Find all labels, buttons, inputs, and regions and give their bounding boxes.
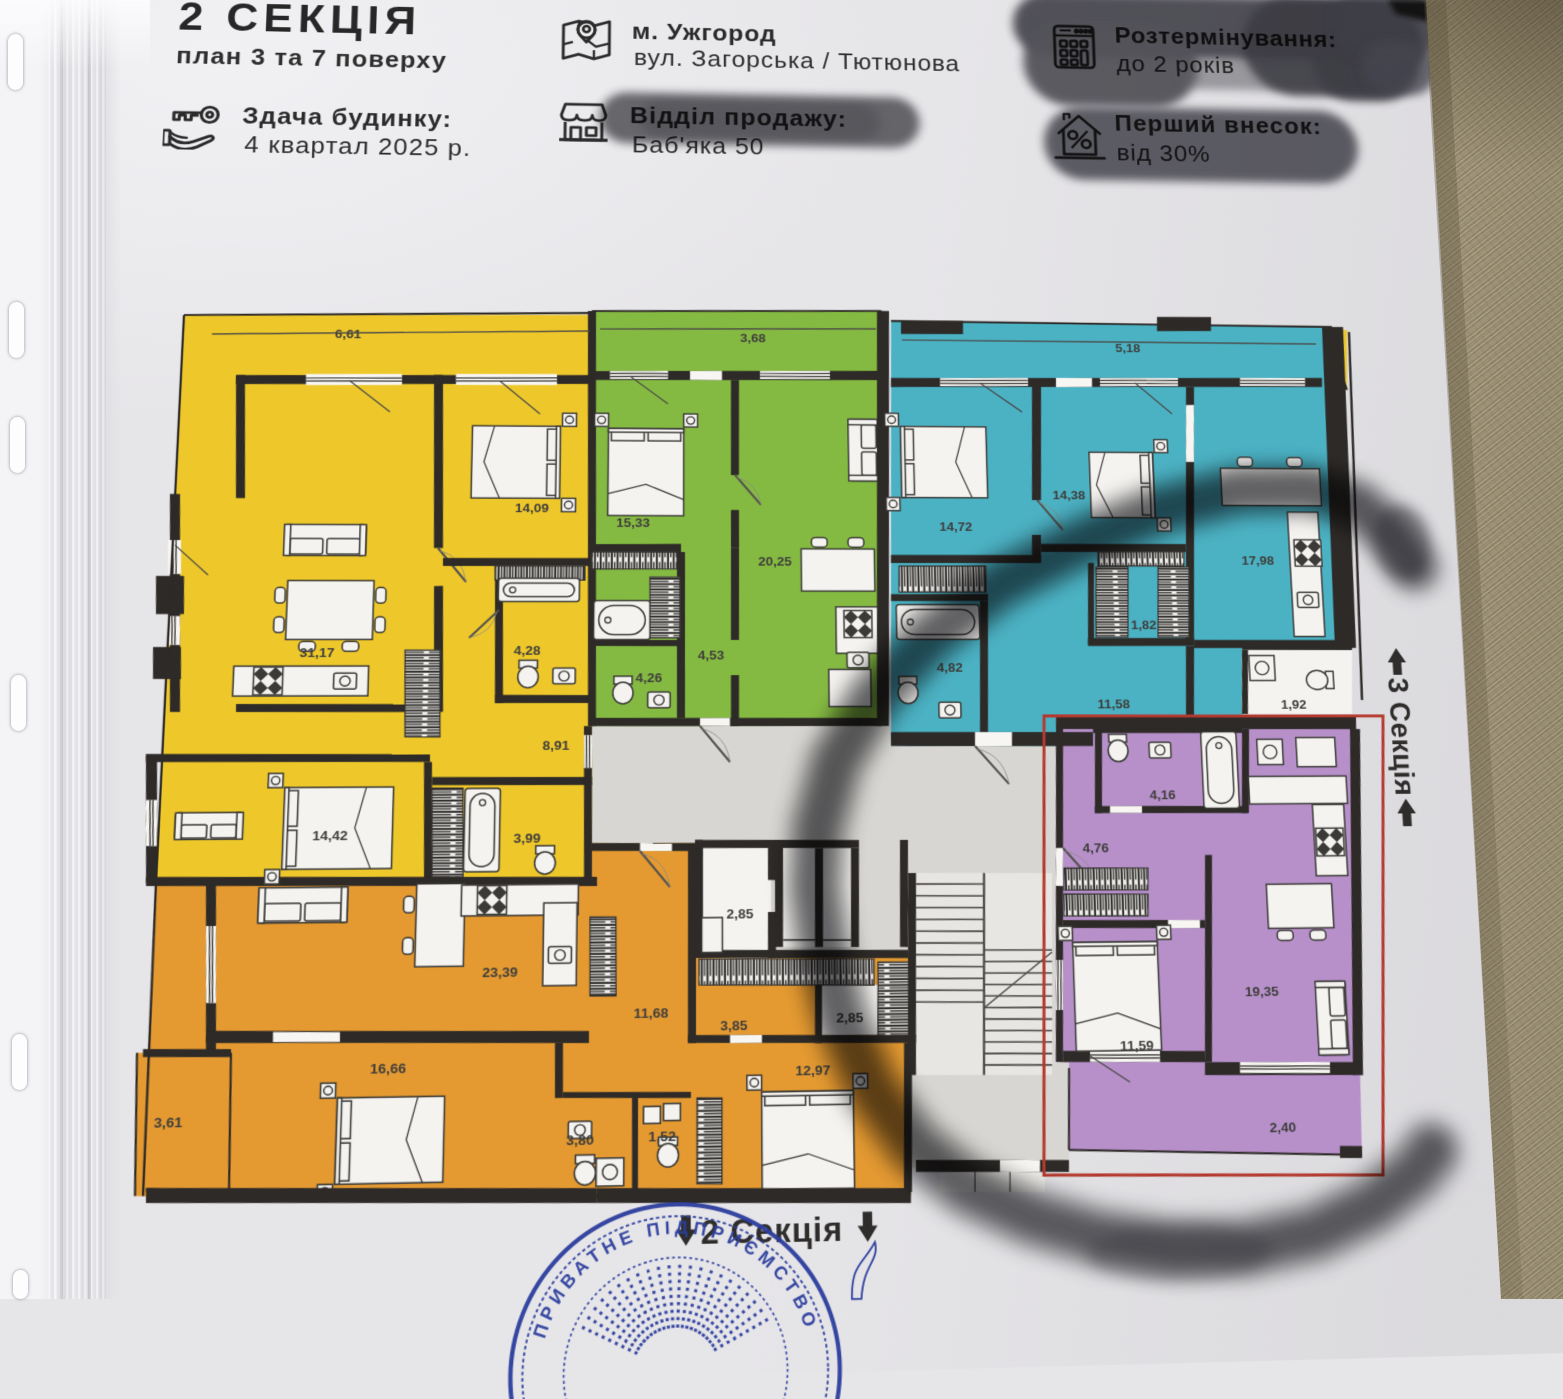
svg-text:16,66: 16,66 bbox=[370, 1059, 407, 1076]
svg-text:2,40: 2,40 bbox=[1269, 1118, 1296, 1135]
svg-text:14,72: 14,72 bbox=[939, 519, 972, 534]
svg-text:1,52: 1,52 bbox=[648, 1127, 676, 1144]
svg-text:23,39: 23,39 bbox=[482, 963, 518, 980]
svg-text:20,25: 20,25 bbox=[758, 554, 792, 569]
svg-text:8,91: 8,91 bbox=[543, 737, 570, 753]
svg-text:31,17: 31,17 bbox=[299, 644, 335, 660]
svg-text:14,42: 14,42 bbox=[312, 827, 348, 844]
svg-text:3,99: 3,99 bbox=[513, 830, 541, 846]
svg-text:12,97: 12,97 bbox=[795, 1061, 830, 1078]
svg-text:4,53: 4,53 bbox=[698, 648, 724, 664]
svg-text:3,85: 3,85 bbox=[720, 1017, 747, 1034]
svg-text:1,82: 1,82 bbox=[1131, 617, 1157, 632]
svg-text:4,76: 4,76 bbox=[1082, 839, 1109, 855]
svg-text:4,28: 4,28 bbox=[514, 643, 541, 659]
svg-text:3 Секція: 3 Секція bbox=[1382, 678, 1421, 797]
svg-text:3,80: 3,80 bbox=[566, 1131, 594, 1149]
svg-text:17,98: 17,98 bbox=[1241, 553, 1274, 568]
svg-text:4,16: 4,16 bbox=[1149, 786, 1176, 802]
svg-text:11,58: 11,58 bbox=[1097, 696, 1130, 712]
svg-text:3,61: 3,61 bbox=[154, 1114, 183, 1132]
svg-text:14,09: 14,09 bbox=[515, 500, 549, 515]
svg-text:11,59: 11,59 bbox=[1120, 1037, 1154, 1054]
svg-text:11,68: 11,68 bbox=[634, 1004, 669, 1021]
svg-text:14,38: 14,38 bbox=[1052, 487, 1085, 502]
svg-text:1,92: 1,92 bbox=[1281, 697, 1307, 712]
svg-text:4,26: 4,26 bbox=[636, 669, 663, 685]
svg-text:3,68: 3,68 bbox=[740, 330, 766, 345]
svg-text:2,85: 2,85 bbox=[726, 905, 753, 922]
svg-text:15,33: 15,33 bbox=[616, 515, 650, 530]
svg-text:19,35: 19,35 bbox=[1244, 983, 1279, 1000]
